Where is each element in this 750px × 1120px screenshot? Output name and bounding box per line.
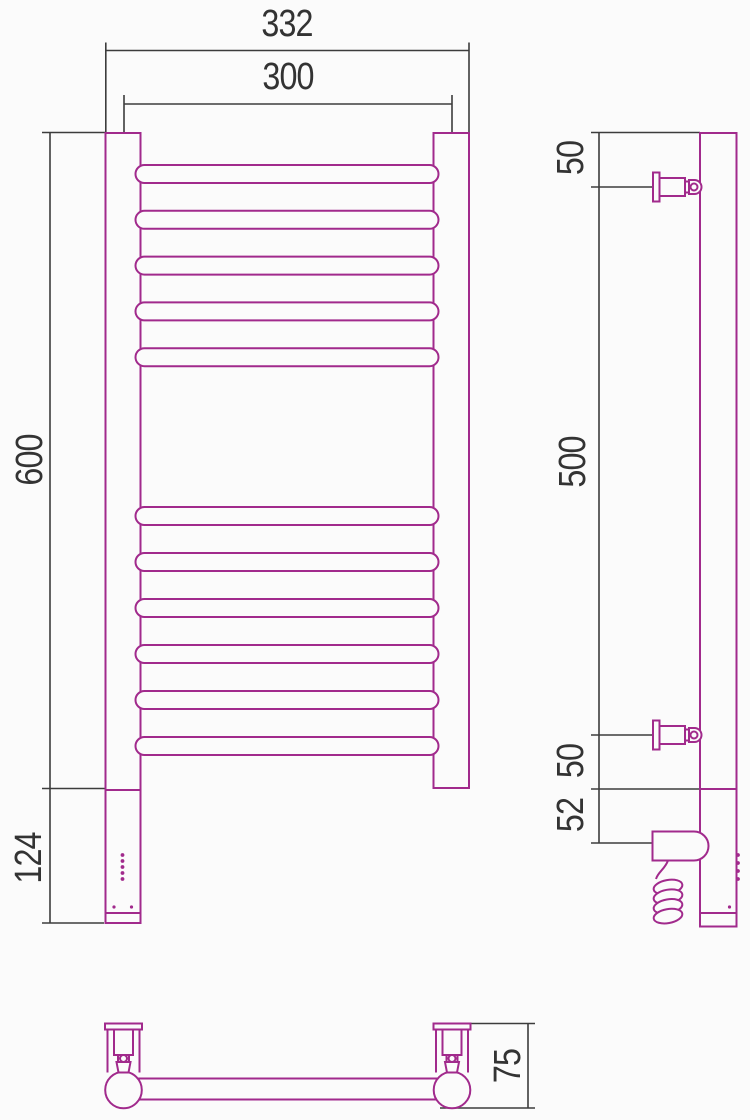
bottom-left-post-circle: [105, 1072, 142, 1109]
rung: [136, 165, 439, 183]
dim-side-top-offset: 50: [552, 141, 590, 175]
dim-side-element-height: 52: [552, 798, 590, 832]
drawing-svg: [0, 0, 750, 1120]
rung: [136, 257, 439, 275]
front-view: [106, 133, 470, 923]
front-rungs: [136, 165, 439, 755]
rung: [136, 599, 439, 617]
screw-dot: [130, 905, 133, 908]
front-left-post: [106, 133, 141, 923]
indicator-dot: [121, 871, 125, 875]
side-indicator-tick: [736, 877, 740, 881]
side-screw-dot: [728, 905, 731, 908]
front-right-post: [434, 133, 470, 788]
indicator-dot: [121, 865, 125, 869]
screw-dot: [112, 905, 115, 908]
bracket-body: [660, 726, 686, 744]
side-indicator-ticks: [728, 853, 740, 909]
bottom-view: [105, 1024, 471, 1109]
rung: [136, 737, 439, 755]
dim-center-spacing: 300: [262, 58, 313, 96]
rung: [136, 507, 439, 525]
dim-overall-width: 332: [261, 5, 312, 43]
indicator-dot: [121, 859, 125, 863]
dim-side-bracket-spacing: 500: [554, 436, 592, 487]
rung: [136, 211, 439, 229]
side-indicator-tick: [736, 853, 740, 857]
power-cable-coil: [653, 878, 684, 926]
side-indicator-tick: [736, 869, 740, 873]
bottom-wall-brackets: [105, 1024, 471, 1073]
rung: [136, 348, 439, 366]
technical-drawing-canvas: 332 300 600 124 50 500 50 52 75: [0, 0, 750, 1120]
bottom-right-post-circle: [434, 1072, 471, 1109]
bracket-body: [660, 178, 686, 196]
power-cable-stub: [656, 861, 668, 880]
bracket-barrel: [443, 1030, 462, 1056]
rung: [136, 553, 439, 571]
front-element-indicator-dots: [112, 853, 133, 909]
heating-element-housing: [653, 832, 709, 861]
bracket-barrel: [114, 1030, 133, 1056]
rung: [136, 691, 439, 709]
bracket-knob: [445, 1062, 459, 1073]
dim-side-bottom-offset: 50: [552, 744, 590, 778]
rung: [136, 302, 439, 320]
side-wall-brackets: [653, 173, 702, 750]
side-view: [653, 133, 740, 927]
indicator-dot: [121, 853, 125, 857]
side-post-tube: [700, 133, 737, 927]
dim-lower-section-height: 124: [10, 832, 48, 883]
dim-bottom-depth: 75: [489, 1049, 527, 1083]
dim-height: 600: [11, 434, 49, 485]
side-indicator-tick: [736, 861, 740, 865]
indicator-dot: [121, 877, 125, 881]
bracket-knob: [117, 1062, 131, 1073]
rung: [136, 645, 439, 663]
